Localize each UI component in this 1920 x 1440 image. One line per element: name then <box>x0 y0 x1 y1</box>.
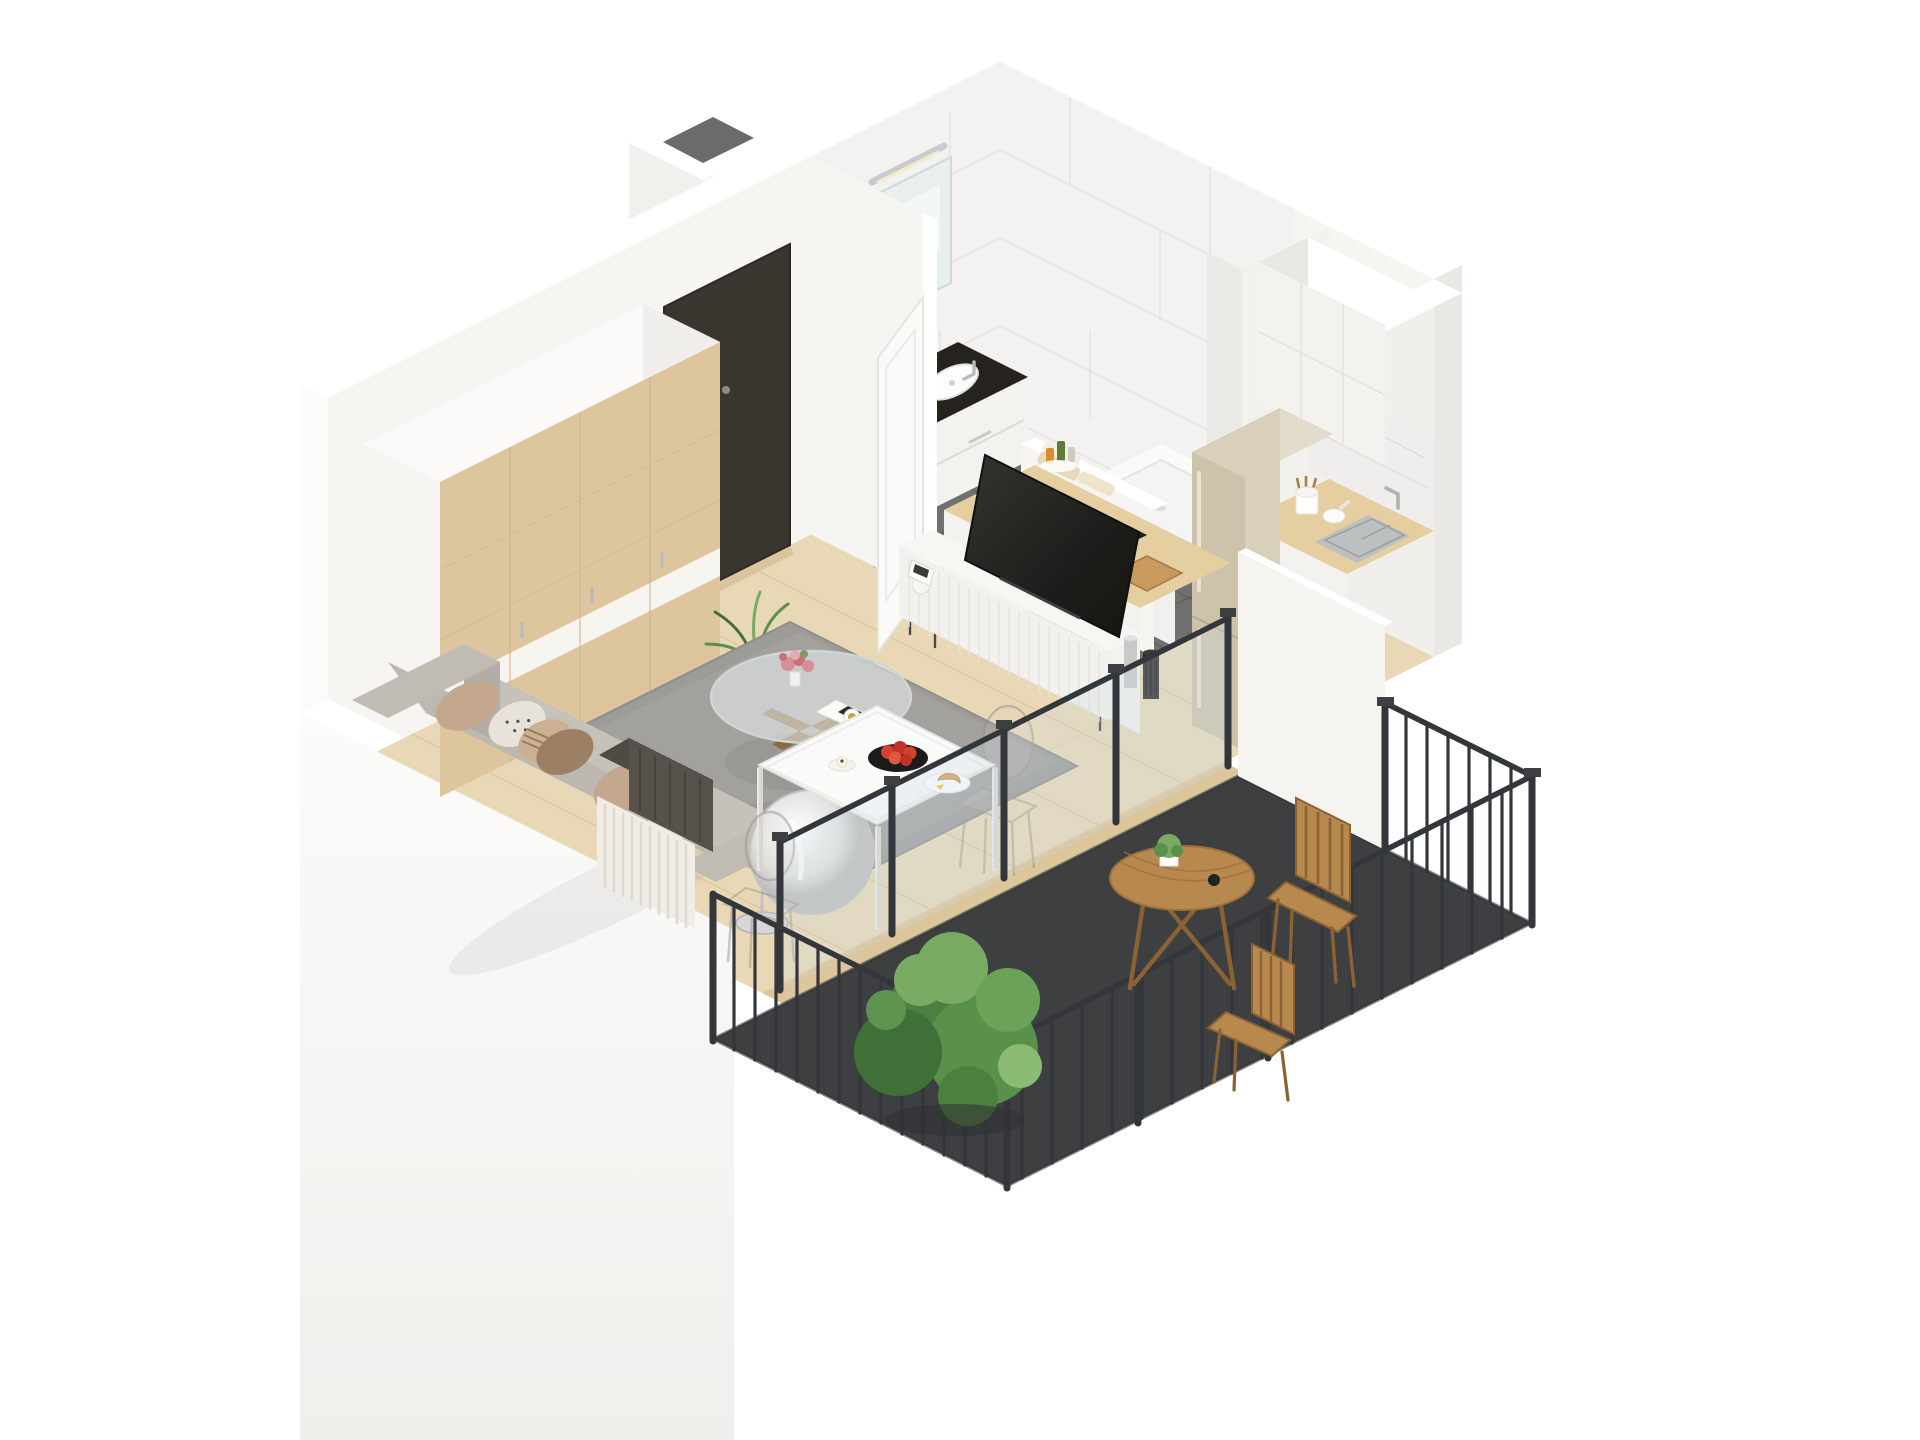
espresso-cup <box>1208 874 1220 886</box>
floorplan-render <box>0 0 1920 1440</box>
ne-wall-edge <box>1434 265 1462 657</box>
door-peephole <box>722 386 730 394</box>
floorplan-canvas <box>0 0 1920 1440</box>
